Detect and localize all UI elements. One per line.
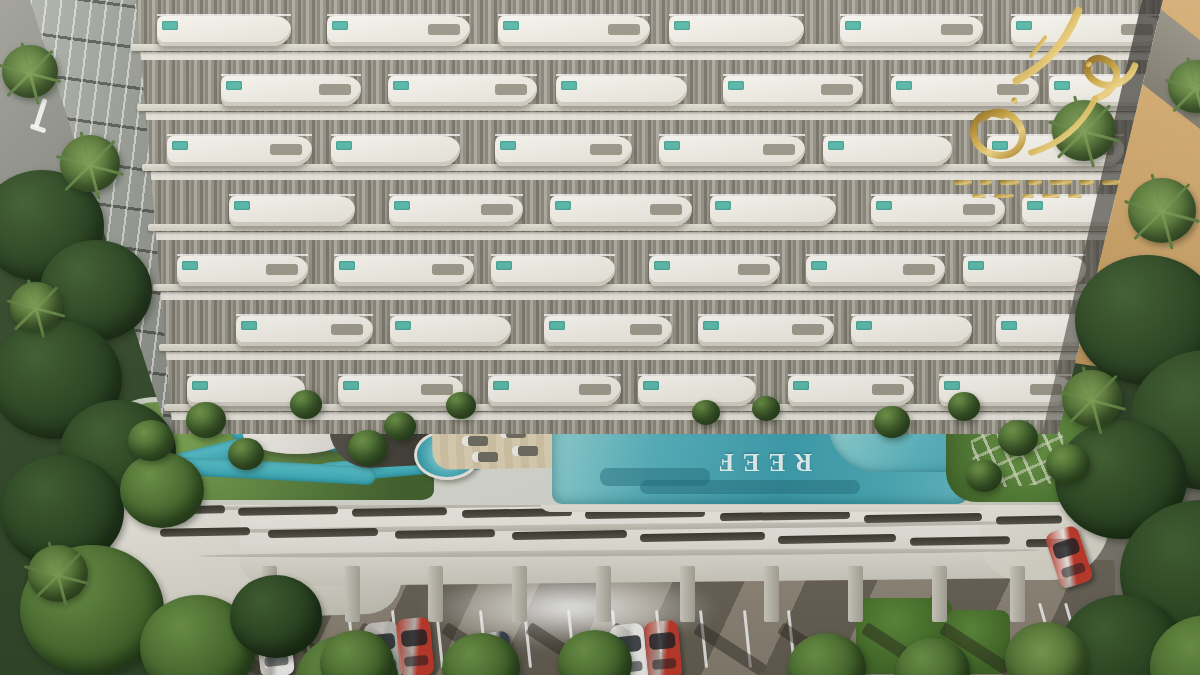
balcony-unit	[556, 76, 687, 106]
balcony-glass-rail	[236, 314, 372, 316]
podium-pillar	[428, 566, 443, 622]
car-windshield	[1060, 562, 1086, 579]
balcony-glass-rail	[963, 254, 1086, 256]
balcony-plunge-pool	[811, 261, 827, 270]
balcony-glass-rail	[187, 374, 305, 376]
balcony-plunge-pool	[715, 201, 731, 210]
balcony-furniture	[481, 204, 513, 215]
balcony-unit	[491, 256, 614, 286]
balcony-furniture	[495, 84, 527, 95]
balcony-unit	[723, 76, 863, 106]
balcony-furniture	[738, 264, 770, 275]
balcony-unit	[823, 136, 952, 166]
balcony-furniture	[331, 324, 363, 335]
podium-pillar	[932, 566, 947, 622]
balcony-glass-rail	[939, 374, 1072, 376]
podium-pillar	[764, 566, 779, 622]
podium-window-slot	[160, 527, 250, 537]
balcony-unit	[229, 196, 355, 226]
balcony-glass-rail	[550, 194, 692, 196]
balcony-plunge-pool	[828, 141, 844, 150]
tree	[120, 452, 204, 528]
sun-lounger	[472, 452, 498, 462]
balcony-glass-rail	[698, 314, 834, 316]
balcony-glass-rail	[649, 254, 780, 256]
balcony-glass-rail	[327, 14, 470, 16]
balcony-plunge-pool	[876, 201, 892, 210]
palm-frond	[33, 574, 60, 601]
palm-frond	[1186, 57, 1197, 89]
balcony-plunge-pool	[664, 141, 680, 150]
balcony-glass-rail	[851, 314, 972, 316]
balcony-plunge-pool	[493, 381, 509, 390]
balcony-plunge-pool	[393, 81, 409, 90]
car-windshield	[401, 629, 428, 647]
balcony-plunge-pool	[343, 381, 359, 390]
balcony-plunge-pool	[172, 141, 188, 150]
balcony-unit	[157, 16, 291, 46]
palm-frond	[80, 131, 92, 165]
balcony-plunge-pool	[162, 21, 178, 30]
balcony-unit	[495, 136, 632, 166]
parked-car	[644, 620, 683, 675]
balcony-unit	[550, 196, 692, 226]
balcony-unit	[498, 16, 650, 46]
balcony-glass-rail	[544, 314, 672, 316]
balcony-furniture	[428, 24, 460, 35]
balcony-glass-rail	[788, 374, 914, 376]
gold-calligraphy-watermark-icon	[942, 2, 1152, 212]
car-windshield	[652, 658, 677, 670]
balcony-plunge-pool	[503, 21, 519, 30]
palm-tree	[28, 545, 88, 602]
balcony-glass-rail	[806, 254, 945, 256]
podium-pillar	[1010, 566, 1025, 622]
tree	[186, 402, 226, 438]
palm-frond	[20, 42, 31, 74]
balcony-glass-rail	[823, 134, 952, 136]
balcony-plunge-pool	[793, 381, 809, 390]
balcony-plunge-pool	[549, 321, 565, 330]
balcony-glass-rail	[723, 74, 863, 76]
balcony-unit	[806, 256, 945, 286]
balcony-furniture	[630, 324, 662, 335]
balcony-unit	[331, 136, 460, 166]
balcony-plunge-pool	[944, 381, 960, 390]
tree	[692, 400, 720, 425]
balcony-furniture	[650, 204, 682, 215]
balcony-glass-rail	[710, 194, 836, 196]
palm-frond	[1091, 375, 1118, 402]
balcony-glass-rail	[556, 74, 687, 76]
balcony-unit	[659, 136, 805, 166]
palm-frond	[58, 574, 92, 586]
balcony-plunge-pool	[845, 21, 861, 30]
palm-tree	[2, 45, 58, 98]
balcony-glass-rail	[659, 134, 805, 136]
balcony-furniture	[872, 384, 904, 395]
palm-frond	[57, 550, 84, 577]
balcony-plunge-pool	[234, 201, 250, 210]
balcony-plunge-pool	[394, 201, 410, 210]
palm-frond	[48, 541, 60, 575]
podium-pillar	[512, 566, 527, 622]
balcony-unit	[177, 256, 308, 286]
balcony-plunge-pool	[336, 141, 352, 150]
balcony-unit	[390, 316, 511, 346]
balcony-unit	[236, 316, 372, 346]
palm-frond	[1195, 64, 1200, 89]
balcony-glass-rail	[388, 74, 537, 76]
balcony-unit	[167, 136, 313, 166]
palm-tree	[60, 135, 120, 192]
palm-frond	[30, 72, 62, 83]
balcony-plunge-pool	[192, 381, 208, 390]
balcony-unit	[649, 256, 780, 286]
balcony-unit	[544, 316, 672, 346]
balcony-glass-rail	[331, 134, 460, 136]
balcony-plunge-pool	[395, 321, 411, 330]
palm-frond	[1172, 87, 1197, 112]
balcony-plunge-pool	[1001, 321, 1017, 330]
balcony-furniture	[792, 324, 824, 335]
balcony-plunge-pool	[241, 321, 257, 330]
parked-car	[396, 617, 435, 675]
podium-pillar	[848, 566, 863, 622]
balcony-unit	[389, 196, 523, 226]
tree	[384, 412, 416, 441]
balcony-unit	[338, 376, 464, 406]
balcony-plunge-pool	[500, 141, 516, 150]
balcony-furniture	[579, 384, 611, 395]
balcony-unit	[221, 76, 361, 106]
palm-frond	[90, 164, 124, 176]
balcony-glass-rail	[338, 374, 464, 376]
car-windshield	[1051, 537, 1081, 560]
balcony-furniture	[421, 384, 453, 395]
car-windshield	[649, 632, 676, 650]
palm-frond	[1161, 183, 1191, 213]
balcony-plunge-pool	[332, 21, 348, 30]
sun-lounger	[512, 446, 538, 456]
balcony-glass-rail	[498, 14, 650, 16]
balcony-glass-rail	[491, 254, 614, 256]
balcony-plunge-pool	[856, 321, 872, 330]
palm-frond	[36, 307, 66, 318]
tree	[1046, 444, 1090, 484]
palm-frond	[1162, 210, 1200, 223]
palm-frond	[35, 286, 58, 309]
balcony-glass-rail	[334, 254, 473, 256]
palm-frond	[29, 49, 54, 74]
car-windshield	[404, 655, 429, 667]
balcony-plunge-pool	[339, 261, 355, 270]
balcony-plunge-pool	[182, 261, 198, 270]
balcony-furniture	[319, 84, 351, 95]
balcony-plunge-pool	[654, 261, 670, 270]
balcony-glass-rail	[495, 134, 632, 136]
balcony-furniture	[763, 144, 795, 155]
balcony-plunge-pool	[561, 81, 577, 90]
balcony-unit	[327, 16, 470, 46]
podium-pillar	[345, 566, 360, 622]
palm-tree	[1062, 370, 1122, 427]
palm-tree	[10, 282, 62, 331]
tree	[752, 396, 780, 421]
balcony-unit	[388, 76, 537, 106]
balcony-plunge-pool	[703, 321, 719, 330]
balcony-plunge-pool	[555, 201, 571, 210]
balcony-unit	[851, 316, 972, 346]
balcony-furniture	[608, 24, 640, 35]
balcony-furniture	[903, 264, 935, 275]
tree	[348, 430, 388, 466]
balcony-furniture	[590, 144, 622, 155]
balcony-furniture	[270, 144, 302, 155]
balcony-unit	[788, 376, 914, 406]
palm-frond	[65, 164, 92, 191]
balcony-plunge-pool	[968, 261, 984, 270]
podium-pillar	[596, 566, 611, 622]
balcony-glass-rail	[390, 314, 511, 316]
balcony-glass-rail	[669, 14, 803, 16]
tree	[290, 390, 322, 419]
balcony-glass-rail	[229, 194, 355, 196]
balcony-furniture	[821, 84, 853, 95]
balcony-unit	[710, 196, 836, 226]
palm-frond	[1067, 399, 1094, 426]
tree	[128, 420, 174, 461]
aerial-render-scene: REEF	[0, 0, 1200, 675]
tree	[230, 575, 322, 658]
balcony-plunge-pool	[226, 81, 242, 90]
palm-frond	[14, 307, 37, 330]
palm-frond	[89, 140, 116, 167]
balcony-furniture	[266, 264, 298, 275]
podium-window-slot	[352, 507, 447, 517]
balcony-glass-rail	[389, 194, 523, 196]
balcony-unit	[698, 316, 834, 346]
balcony-glass-rail	[167, 134, 313, 136]
sun-lounger	[462, 436, 488, 446]
tree	[446, 392, 476, 419]
balcony-furniture	[432, 264, 464, 275]
palm-frond	[1133, 211, 1163, 241]
balcony-unit	[488, 376, 621, 406]
palm-frond	[1082, 366, 1094, 400]
balcony-glass-rail	[177, 254, 308, 256]
podium-window-slot	[996, 515, 1062, 524]
balcony-unit	[963, 256, 1086, 286]
palm-frond	[6, 72, 31, 97]
balcony-glass-rail	[638, 374, 756, 376]
tree	[948, 392, 980, 421]
podium-pillar	[680, 566, 695, 622]
balcony-plunge-pool	[643, 381, 659, 390]
balcony-unit	[334, 256, 473, 286]
tree	[998, 420, 1038, 456]
balcony-plunge-pool	[496, 261, 512, 270]
balcony-glass-rail	[488, 374, 621, 376]
balcony-plunge-pool	[896, 81, 912, 90]
balcony-plunge-pool	[674, 21, 690, 30]
palm-frond	[1092, 399, 1126, 411]
balcony-glass-rail	[221, 74, 361, 76]
balcony-plunge-pool	[728, 81, 744, 90]
balcony-glass-rail	[157, 14, 291, 16]
balcony-unit	[669, 16, 803, 46]
